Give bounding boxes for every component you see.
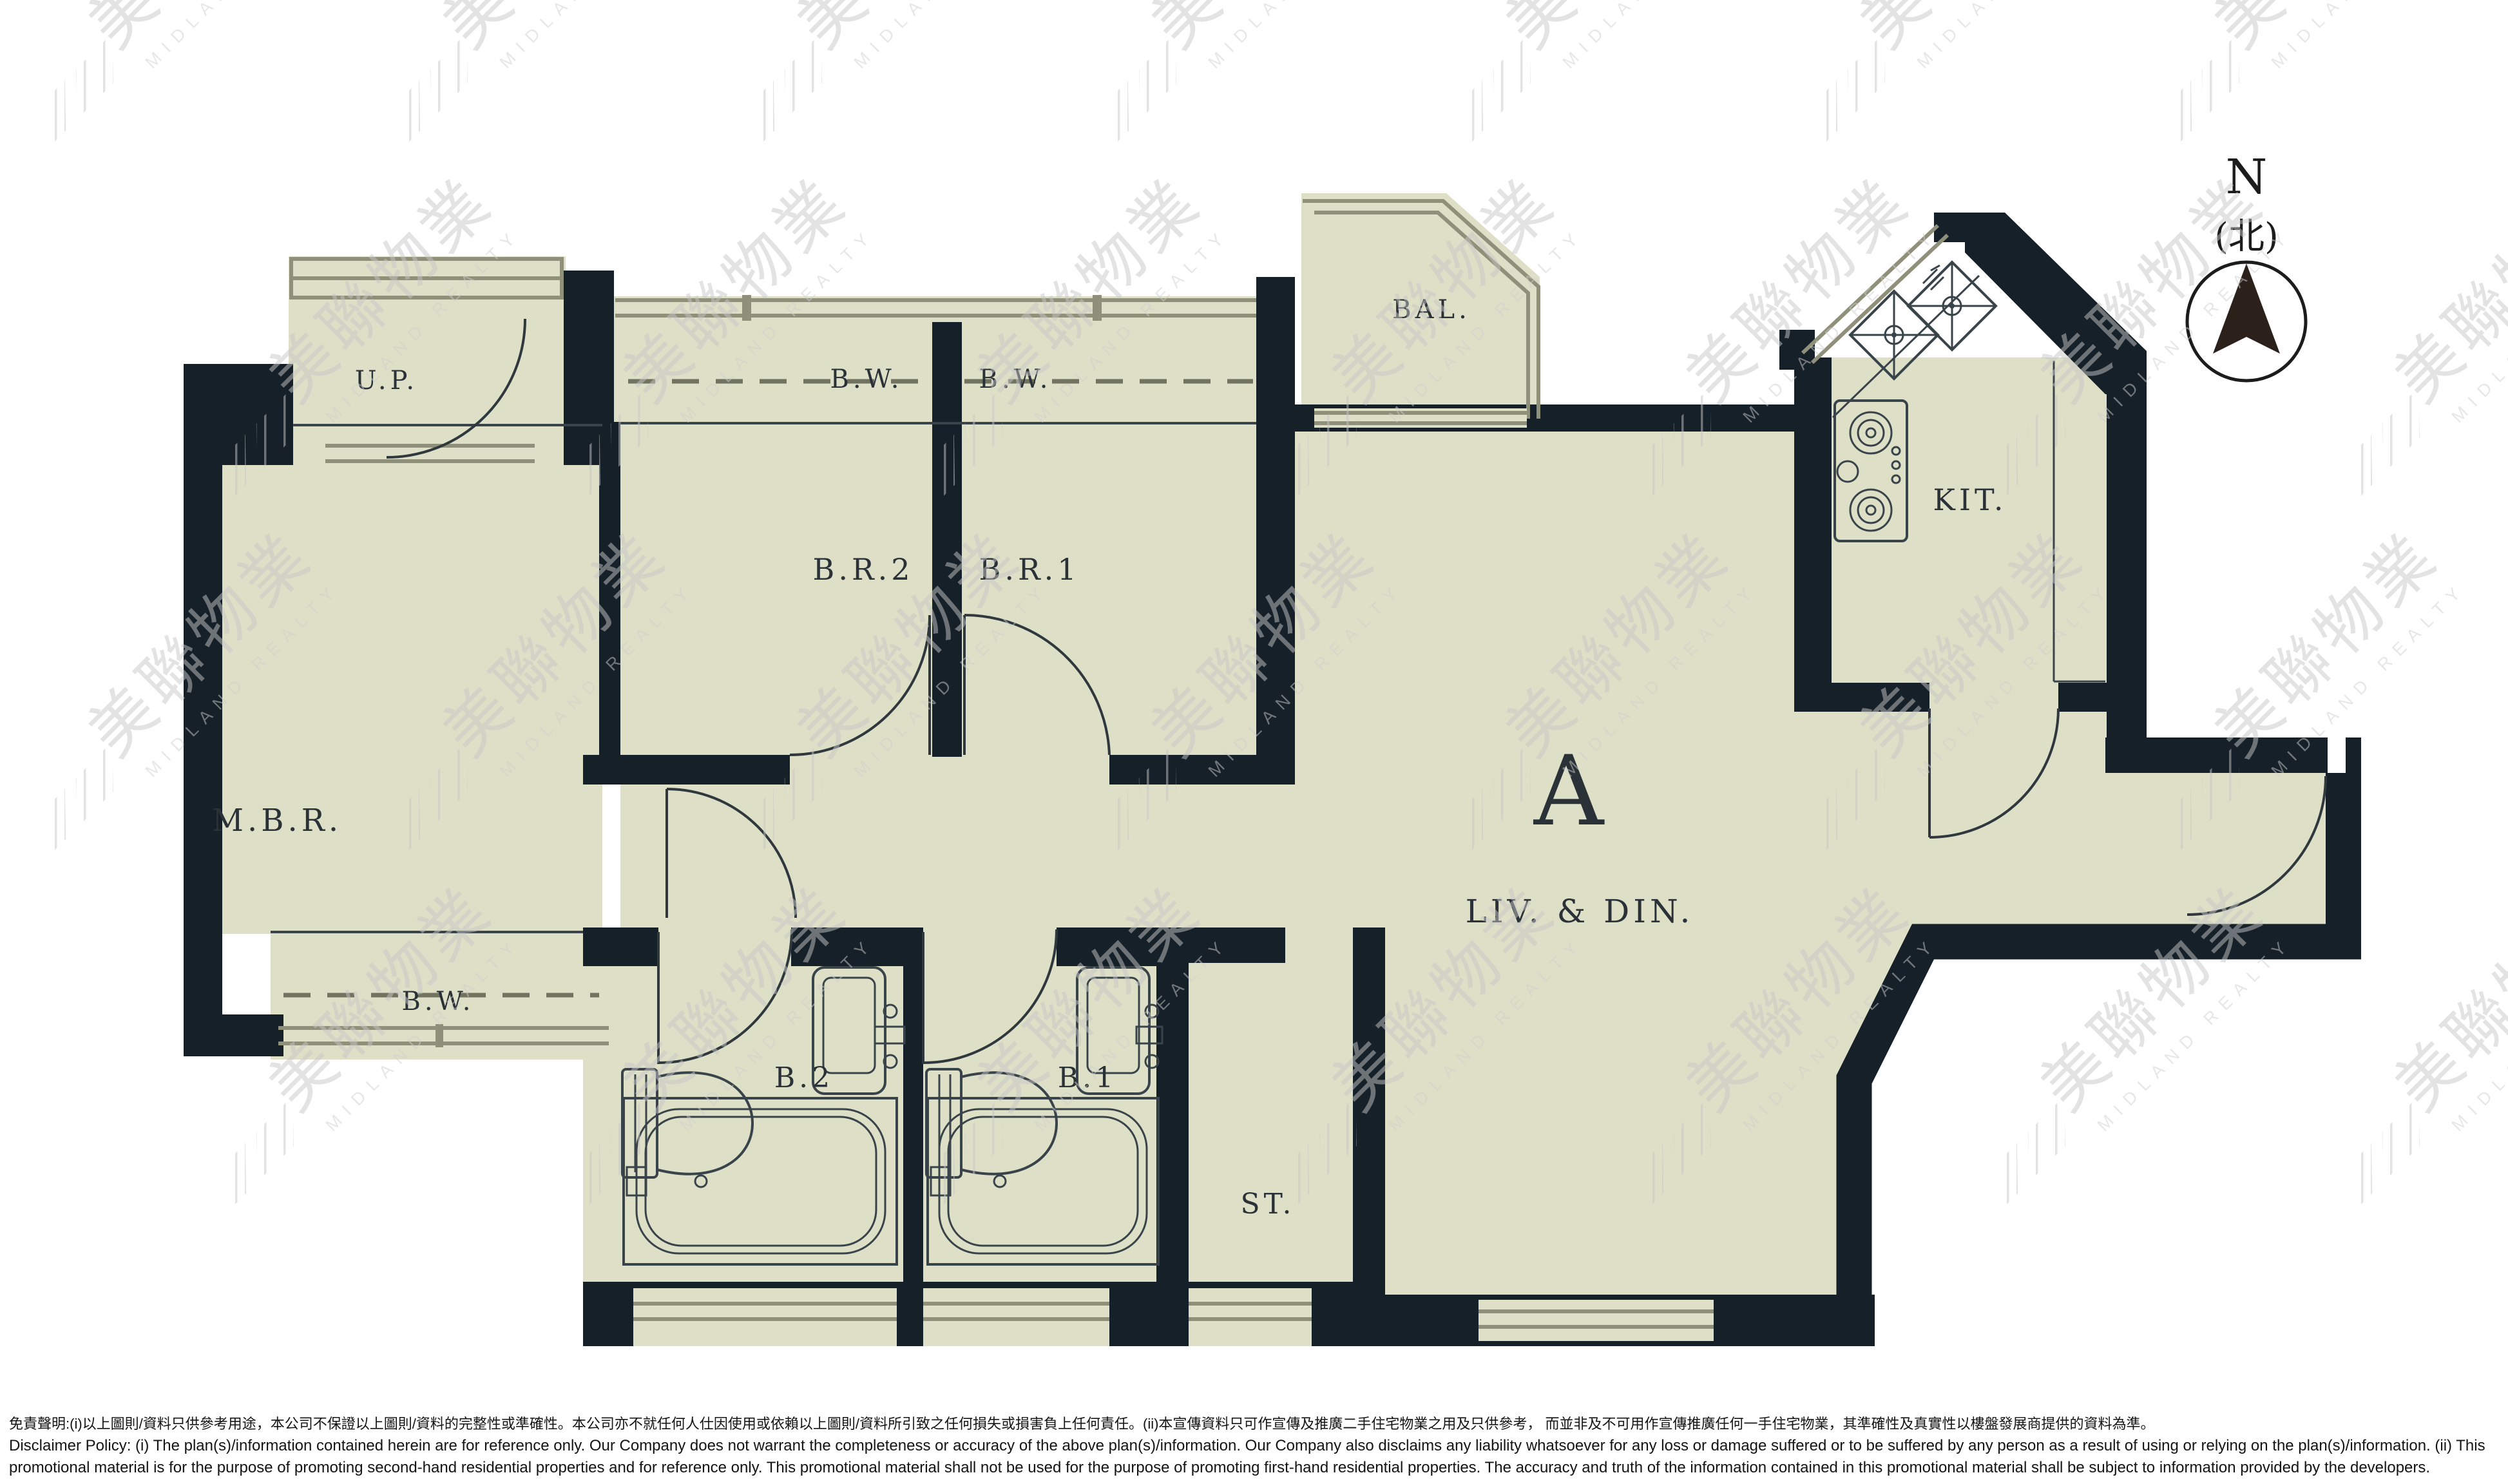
disclaimer-zh: 免責聲明:(i)以上圖則/資料只供參考用途，本公司不保證以上圖則/資料的完整性或… [9,1413,2497,1435]
disclaimer: 免責聲明:(i)以上圖則/資料只供參考用途，本公司不保證以上圖則/資料的完整性或… [9,1413,2497,1479]
disclaimer-en: Disclaimer Policy: (i) The plan(s)/infor… [9,1435,2497,1479]
floorplan-page: U.P. B.W. B.W. B.R.2 B.R.1 BAL. KIT. M.B… [0,0,2508,1484]
window-st-bottom [1189,1288,1312,1346]
midland-watermark-icon: 美聯物業MIDLAND REALTY [1413,0,1764,158]
label-b2: B.2 [774,1061,834,1094]
window-b1-bottom [923,1288,1109,1346]
midland-watermark-icon: 美聯物業MIDLAND REALTY [350,0,701,158]
midland-watermark-icon: 美聯物業MIDLAND REALTY [1768,0,2118,158]
floor-plan-svg: U.P. B.W. B.W. B.R.2 B.R.1 BAL. KIT. M.B… [0,0,2508,1484]
floor-living-dining [1295,357,2145,1346]
label-kit: KIT. [1933,482,2007,517]
label-br2: B.R.2 [813,552,914,587]
midland-watermark-icon: 美聯物業MIDLAND REALTY [1059,0,1410,158]
midland-watermark-icon: 美聯物業MIDLAND REALTY [0,0,347,158]
window-b2-bottom [633,1288,897,1346]
midland-watermark-icon: 美聯物業MIDLAND REALTY [705,0,1055,158]
label-bw-top-left: B.W. [830,365,903,394]
midland-watermark-icon: 美聯物業MIDLAND REALTY [2122,0,2473,158]
label-mbr: M.B.R. [212,803,342,839]
label-st: ST. [1240,1188,1295,1221]
window-living-bottom [1479,1300,1714,1341]
midland-watermark-icon: 美聯物業MIDLAND REALTY [2302,163,2508,513]
